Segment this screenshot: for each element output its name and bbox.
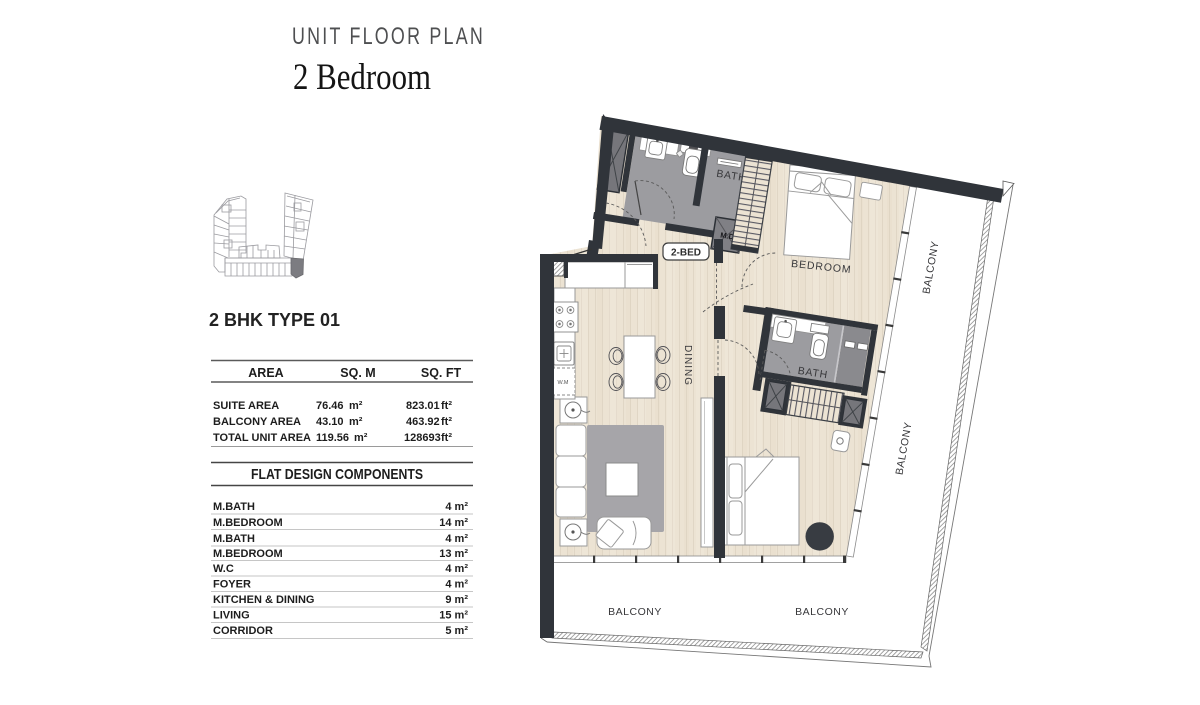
svg-text:SQ. M: SQ. M	[340, 366, 375, 380]
svg-text:4 m²: 4 m²	[445, 563, 468, 575]
svg-text:TOTAL UNIT AREA: TOTAL UNIT AREA	[213, 432, 311, 444]
svg-text:15 m²: 15 m²	[439, 610, 468, 622]
svg-text:DINING: DINING	[682, 345, 693, 386]
svg-text:ft²: ft²	[441, 400, 452, 412]
svg-text:SUITE AREA: SUITE AREA	[213, 400, 279, 412]
svg-text:BALCONY: BALCONY	[795, 606, 849, 618]
svg-text:823.01: 823.01	[406, 400, 440, 412]
svg-text:9 m²: 9 m²	[445, 594, 468, 606]
svg-text:CORRIDOR: CORRIDOR	[213, 625, 273, 637]
svg-text:5 m²: 5 m²	[445, 625, 468, 637]
svg-text:ft²: ft²	[441, 416, 452, 428]
svg-text:M.BEDROOM: M.BEDROOM	[213, 517, 283, 529]
svg-text:2 BHK TYPE 01: 2 BHK TYPE 01	[209, 310, 340, 330]
svg-text:m²: m²	[349, 416, 363, 428]
svg-text:FOYER: FOYER	[213, 579, 251, 591]
svg-text:4 m²: 4 m²	[445, 501, 468, 513]
svg-text:ft²: ft²	[441, 432, 452, 444]
svg-text:AREA: AREA	[248, 366, 283, 380]
svg-text:119.56: 119.56	[316, 432, 349, 444]
svg-text:KITCHEN & DINING: KITCHEN & DINING	[213, 594, 314, 606]
svg-text:BALCONY: BALCONY	[608, 606, 662, 618]
svg-text:76.46: 76.46	[316, 400, 344, 412]
svg-text:2 Bedroom: 2 Bedroom	[293, 57, 431, 98]
svg-text:m²: m²	[354, 432, 368, 444]
svg-text:M.BEDROOM: M.BEDROOM	[213, 548, 283, 560]
svg-text:m²: m²	[349, 400, 363, 412]
svg-text:W.C: W.C	[213, 563, 234, 575]
svg-text:W.M: W.M	[558, 380, 569, 386]
svg-text:FLAT DESIGN COMPONENTS: FLAT DESIGN COMPONENTS	[251, 466, 423, 483]
svg-text:4 m²: 4 m²	[445, 579, 468, 591]
svg-text:4 m²: 4 m²	[445, 533, 468, 545]
svg-text:43.10: 43.10	[316, 416, 344, 428]
svg-text:14 m²: 14 m²	[439, 517, 468, 529]
svg-text:SQ. FT: SQ. FT	[421, 366, 462, 380]
svg-text:128693: 128693	[404, 432, 441, 444]
svg-text:UNIT FLOOR PLAN: UNIT FLOOR PLAN	[292, 23, 485, 50]
svg-text:LIVING: LIVING	[213, 610, 250, 622]
svg-text:13 m²: 13 m²	[439, 548, 468, 560]
svg-text:463.92: 463.92	[406, 416, 440, 428]
svg-text:2-BED: 2-BED	[671, 248, 701, 259]
svg-text:M.BATH: M.BATH	[213, 501, 255, 513]
svg-text:M.BATH: M.BATH	[213, 533, 255, 545]
svg-text:BALCONY AREA: BALCONY AREA	[213, 416, 301, 428]
